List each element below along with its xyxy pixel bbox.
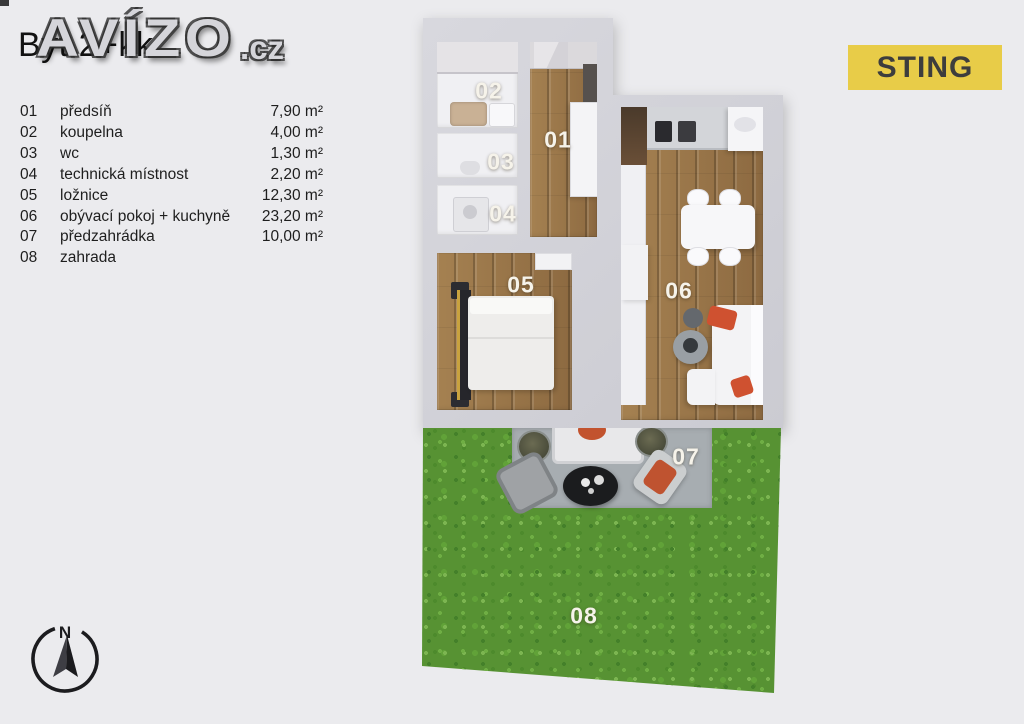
legend-row-02: 02koupelna4,00 m² bbox=[20, 123, 323, 144]
legend-row-07: 07předzahrádka10,00 m² bbox=[20, 227, 323, 248]
legend-name: technická místnost bbox=[60, 165, 239, 186]
avizo-watermark: AVÍZO.cz bbox=[36, 8, 258, 69]
sting-logo-badge: STING bbox=[848, 45, 1002, 90]
legend-num: 03 bbox=[20, 144, 60, 165]
legend-num: 04 bbox=[20, 165, 60, 186]
entry-door bbox=[534, 42, 568, 68]
legend-num: 06 bbox=[20, 207, 60, 228]
garden-area bbox=[422, 428, 784, 694]
legend-area: 4,00 m² bbox=[239, 123, 323, 144]
sofa-chaise bbox=[687, 369, 715, 405]
room-label-01: 01 bbox=[544, 127, 572, 154]
legend-area: 12,30 m² bbox=[239, 186, 323, 207]
dining-table bbox=[681, 205, 755, 249]
legend-row-03: 03wc1,30 m² bbox=[20, 144, 323, 165]
bathroom-sink bbox=[489, 103, 515, 127]
corner-artifact bbox=[0, 0, 9, 6]
legend-area: 2,20 m² bbox=[239, 165, 323, 186]
legend-area: 7,90 m² bbox=[239, 102, 323, 123]
legend-area bbox=[239, 248, 323, 269]
legend-row-04: 04technická místnost2,20 m² bbox=[20, 165, 323, 186]
cooktop bbox=[678, 121, 696, 142]
room-label-02: 02 bbox=[475, 78, 503, 105]
room-legend: 01předsíň7,90 m² 02koupelna4,00 m² 03wc1… bbox=[20, 102, 323, 269]
legend-area: 10,00 m² bbox=[239, 227, 323, 248]
bathtub bbox=[450, 102, 487, 126]
dresser bbox=[535, 253, 572, 270]
watermark-main: AVÍZO bbox=[36, 8, 235, 69]
room-label-03: 03 bbox=[487, 149, 515, 176]
legend-name: wc bbox=[60, 144, 239, 165]
legend-num: 05 bbox=[20, 186, 60, 207]
legend-num: 01 bbox=[20, 102, 60, 123]
bed-duvet-fold bbox=[468, 337, 554, 339]
legend-area: 1,30 m² bbox=[239, 144, 323, 165]
sting-logo-text: STING bbox=[877, 51, 974, 85]
table-cup bbox=[594, 475, 604, 485]
dining-chair bbox=[687, 247, 709, 266]
shower-area bbox=[437, 42, 518, 74]
legend-name: koupelna bbox=[60, 123, 239, 144]
compass-north-indicator: N bbox=[23, 617, 107, 701]
room-bedroom-05 bbox=[437, 253, 572, 410]
coffee-table-tray bbox=[683, 338, 698, 353]
compass-n-label: N bbox=[59, 623, 71, 642]
side-table-small bbox=[683, 308, 703, 328]
room-label-08: 08 bbox=[570, 603, 598, 630]
kitchen-sink-appliance bbox=[655, 121, 672, 142]
pantry-block bbox=[621, 245, 648, 300]
toilet bbox=[460, 161, 480, 175]
legend-num: 08 bbox=[20, 248, 60, 269]
legend-row-08: 08zahrada bbox=[20, 248, 323, 269]
legend-name: předsíň bbox=[60, 102, 239, 123]
room-label-06: 06 bbox=[665, 278, 693, 305]
bed-pillows bbox=[470, 298, 552, 314]
kitchen-tall-cabinet bbox=[621, 107, 647, 165]
legend-row-05: 05ložnice12,30 m² bbox=[20, 186, 323, 207]
legend-row-06: 06obývací pokoj + kuchyně23,20 m² bbox=[20, 207, 323, 228]
legend-num: 07 bbox=[20, 227, 60, 248]
washbasin-bowl bbox=[734, 117, 756, 132]
legend-name: zahrada bbox=[60, 248, 239, 269]
washing-machine-door bbox=[463, 205, 477, 219]
legend-name: ložnice bbox=[60, 186, 239, 207]
outdoor-chair-left bbox=[493, 449, 561, 517]
legend-name: předzahrádka bbox=[60, 227, 239, 248]
legend-num: 02 bbox=[20, 123, 60, 144]
watermark-suffix: .cz bbox=[240, 29, 284, 67]
table-dot bbox=[588, 488, 594, 494]
room-label-04: 04 bbox=[489, 201, 517, 228]
wardrobe bbox=[570, 102, 597, 197]
table-cup bbox=[581, 478, 590, 487]
legend-area: 23,20 m² bbox=[239, 207, 323, 228]
dining-chair bbox=[719, 247, 741, 266]
room-label-07: 07 bbox=[672, 444, 700, 471]
outdoor-table-black bbox=[563, 466, 618, 506]
room-living-kitchen-06 bbox=[621, 107, 763, 420]
legend-name: obývací pokoj + kuchyně bbox=[60, 207, 239, 228]
legend-row-01: 01předsíň7,90 m² bbox=[20, 102, 323, 123]
room-label-05: 05 bbox=[507, 272, 535, 299]
